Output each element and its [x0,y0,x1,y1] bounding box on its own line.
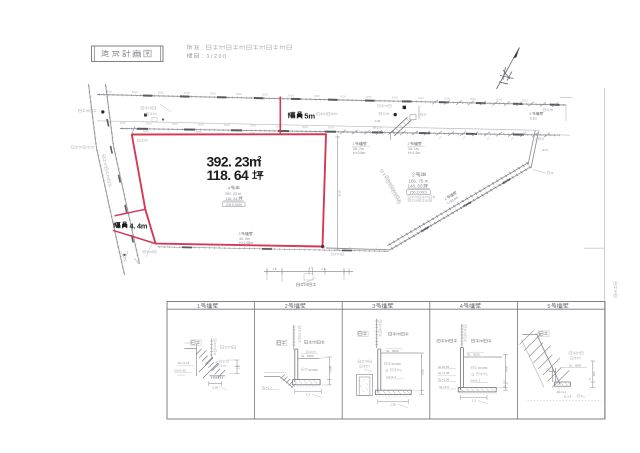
svg-text:(28.0,000): (28.0,000) [226,203,242,207]
svg-text:5000: 5000 [302,125,308,129]
svg-text:5000: 5000 [328,125,334,129]
svg-text:5000: 5000 [496,98,502,102]
svg-text:5000: 5000 [392,349,399,353]
svg-text:GL: GL [547,368,551,372]
svg-text:5000: 5000 [224,123,230,127]
svg-text:5000: 5000 [120,121,126,125]
svg-text:600: 600 [592,371,596,376]
svg-text:1.5: 1.5 [309,266,314,270]
svg-text:5000: 5000 [288,93,294,97]
svg-text:GL=1.2: GL=1.2 [387,375,397,379]
svg-text:1.2: 1.2 [472,399,477,403]
svg-text:): ) [401,368,402,372]
svg-text:5000: 5000 [196,130,202,134]
svg-text:5000: 5000 [210,92,216,96]
svg-text:1 / 2 0 0: 1 / 2 0 0 [207,54,226,60]
svg-text:5m: 5m [304,112,315,121]
svg-text:GL=0.55: GL=0.55 [438,365,450,369]
svg-text:5000: 5000 [340,94,346,98]
svg-text:H=1.65m: H=1.65m [239,241,253,245]
svg-text:GL: GL [386,349,390,353]
svg-text:): ) [487,372,488,376]
svg-text:5000: 5000 [307,354,314,358]
svg-text:1.8: 1.8 [272,267,277,271]
svg-text:5: 5 [547,304,550,310]
svg-text:GL=1.55: GL=1.55 [438,378,450,382]
svg-text:5000: 5000 [392,95,398,99]
svg-text:1200: 1200 [328,366,332,372]
svg-text:GL=1.05: GL=1.05 [438,371,450,375]
svg-text::: : [202,54,203,60]
svg-text:5000: 5000 [470,97,476,101]
svg-text:5000: 5000 [575,363,581,367]
svg-text:392. 23 m: 392. 23 m [225,192,241,196]
svg-text:4: 4 [460,304,463,310]
svg-text:1.2: 1.2 [237,365,241,369]
svg-text:3: 3 [372,304,375,310]
svg-text:0.45: 0.45 [375,119,381,123]
svg-text:H=1.2m: H=1.2m [408,151,420,155]
svg-text:5000: 5000 [172,122,178,126]
svg-text:5000: 5000 [473,352,480,356]
svg-text:5000: 5000 [366,95,372,99]
svg-text:(4.5): (4.5) [542,148,548,152]
svg-text:GL: GL [467,352,471,356]
svg-text:GL=1.2: GL=1.2 [557,390,567,394]
svg-text:3: 3 [239,232,241,236]
svg-text:118. 64: 118. 64 [207,167,250,183]
svg-text::: : [202,45,203,51]
svg-text:118. 64: 118. 64 [225,197,237,201]
svg-text:8.15: 8.15 [338,190,342,196]
svg-text:GL=1.2: GL=1.2 [471,378,481,382]
svg-text:5000: 5000 [444,97,450,101]
svg-text:148. 50: 148. 50 [408,184,424,189]
svg-text:GL=2.35: GL=2.35 [175,368,187,372]
svg-text:5000: 5000 [314,94,320,98]
svg-text:): ) [584,394,585,398]
svg-text:1: 1 [197,304,200,310]
svg-text:5000: 5000 [276,124,282,128]
svg-text:1.05: 1.05 [212,385,218,389]
svg-text:2: 2 [285,304,288,310]
svg-text:(5: (5 [472,372,475,376]
svg-text:GL: GL [569,363,573,367]
svg-text:1650: 1650 [421,369,425,375]
svg-text:GL=1.2: GL=1.2 [262,386,272,390]
svg-text:5000: 5000 [132,90,138,94]
svg-text:5000: 5000 [184,91,190,95]
svg-text:GL=1.15: GL=1.15 [178,361,190,365]
svg-text:5: 5 [530,112,532,116]
svg-text:6.1m: 6.1m [530,117,537,121]
svg-text:2.8: 2.8 [321,267,326,271]
svg-text:(50.2,000): (50.2,000) [410,191,426,195]
svg-text:W=250: W=250 [309,368,319,372]
svg-text:H=0.6m: H=0.6m [353,151,365,155]
svg-text:5000: 5000 [418,96,424,100]
svg-text:5000: 5000 [250,124,256,128]
svg-text:5000: 5000 [262,93,268,97]
svg-text:5000: 5000 [198,123,204,127]
svg-text:5000: 5000 [158,91,164,95]
svg-text:1450: 1450 [505,366,509,372]
svg-text:5000: 5000 [522,98,528,102]
svg-text:(1:1.5: (1:1.5 [564,394,572,398]
svg-text:2: 2 [408,142,410,146]
svg-text:W=250: W=250 [478,366,488,370]
svg-text:1.2: 1.2 [306,393,311,397]
svg-text:2: 2 [258,154,262,163]
svg-text:(5: (5 [386,368,389,372]
svg-text:5000: 5000 [146,121,152,125]
svg-text:GL: GL [301,354,305,358]
svg-text:5000: 5000 [236,92,242,96]
svg-text:GL=2.0: GL=2.0 [439,385,449,389]
svg-text:1: 1 [353,142,355,146]
svg-text:4. 4m: 4. 4m [130,221,148,230]
svg-text:W=250: W=250 [392,362,402,366]
svg-text:1.35: 1.35 [390,403,396,407]
